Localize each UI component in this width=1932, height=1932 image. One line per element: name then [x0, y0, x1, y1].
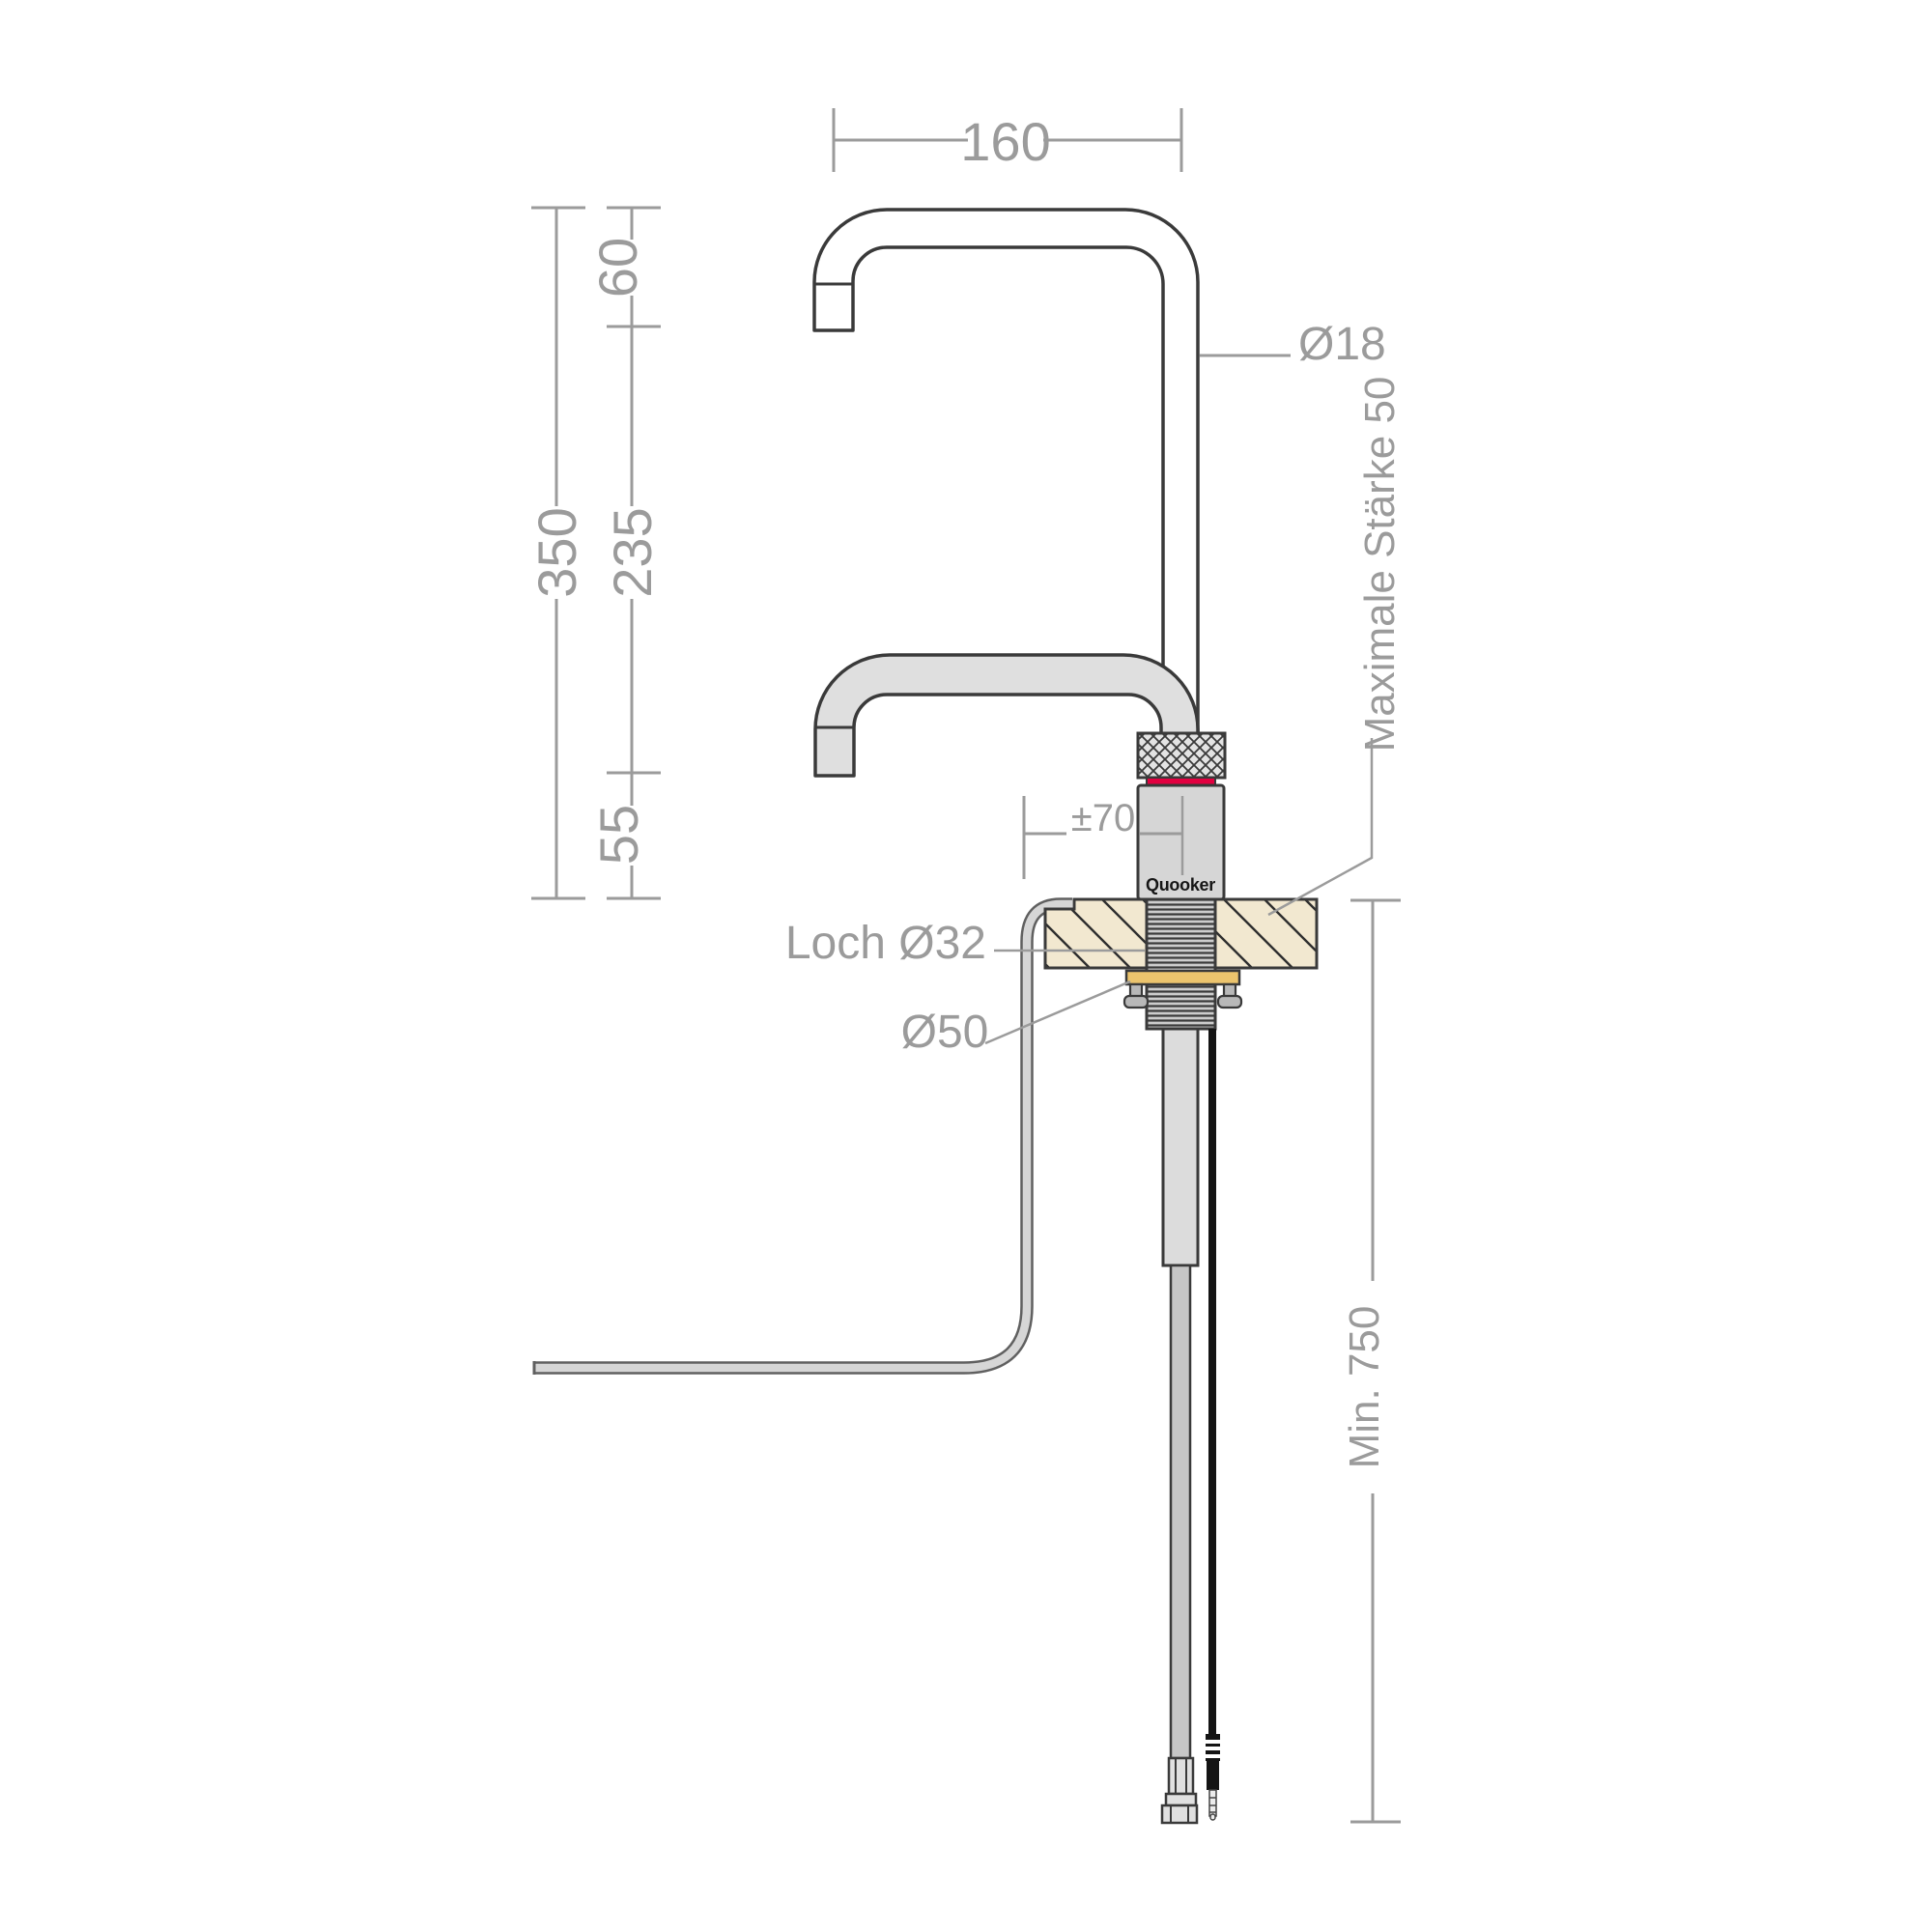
leader-washer	[985, 981, 1130, 1043]
diagram-canvas: Quooker	[0, 0, 1932, 1932]
leader-max-thickness	[1268, 738, 1372, 915]
brass-washer	[1126, 971, 1239, 984]
label-washer: Ø50	[901, 1007, 989, 1058]
label-min-depth: Min. 750	[1341, 1306, 1388, 1469]
label-top-height: 60	[587, 238, 648, 298]
dimension-labels: 160 60 350 235 55 Ø18 Maximale Stärke 50…	[526, 111, 1404, 1468]
label-total-height: 350	[526, 507, 587, 597]
power-cable	[1208, 1029, 1216, 1734]
label-reach: 160	[960, 111, 1050, 172]
water-hose	[1171, 1265, 1190, 1758]
worktop-right	[1215, 899, 1317, 968]
knurled-ring	[1138, 733, 1225, 778]
fixing-screw-right	[1218, 984, 1241, 1008]
worktop-left	[1045, 899, 1147, 968]
label-hole: Loch Ø32	[785, 918, 986, 969]
hose-fitting	[1162, 1758, 1197, 1823]
label-max-thickness: Maximale Stärke 50	[1356, 377, 1404, 753]
threaded-shank	[1147, 899, 1215, 1029]
installation-diagram: Quooker	[0, 0, 1932, 1932]
jack-plug	[1202, 1734, 1224, 1820]
brand-label: Quooker	[1146, 875, 1215, 895]
label-mid-height: 235	[602, 507, 663, 597]
tailpipe	[1163, 1029, 1198, 1265]
label-base-height: 55	[588, 805, 649, 865]
side-hose	[534, 904, 1072, 1375]
label-spout-diameter: Ø18	[1298, 319, 1386, 370]
label-offset: ±70	[1071, 797, 1135, 839]
fixing-screw-left	[1124, 984, 1148, 1008]
